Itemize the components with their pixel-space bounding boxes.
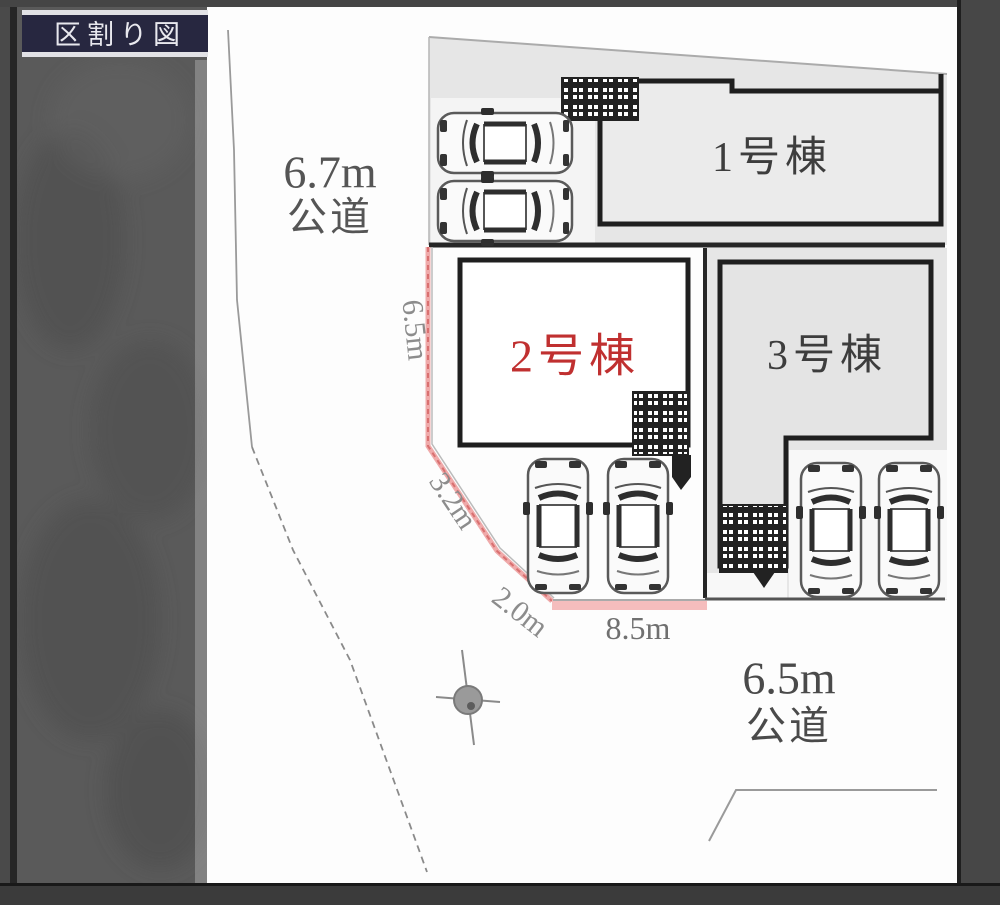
lot-3-south-sliver xyxy=(706,573,787,599)
west-road-label: 6.7m 公道 xyxy=(283,147,377,240)
top-strip xyxy=(0,0,1000,7)
title-rule-top xyxy=(22,10,208,15)
right-strip-line xyxy=(957,0,961,905)
building-2-label: 2号棟 xyxy=(510,331,640,382)
car-icon xyxy=(523,459,593,593)
dimension-west-side: 6.5m xyxy=(395,298,434,362)
car-icon xyxy=(874,463,944,597)
dimension-south-side: 8.5m xyxy=(606,610,671,646)
west-road-width: 6.7m xyxy=(283,147,377,198)
west-road-type: 公道 xyxy=(287,195,373,240)
car-icon xyxy=(438,176,572,246)
car-icon xyxy=(796,463,866,597)
site-plan-canvas: 区割り図 1号棟 2号棟 3号棟 xyxy=(0,0,1000,905)
building-3-label: 3号棟 xyxy=(767,333,887,379)
car-icon xyxy=(438,108,572,178)
right-strip xyxy=(957,0,1000,905)
entrance-grid-icon-building-1 xyxy=(562,78,638,120)
left-edge-shade xyxy=(0,0,10,905)
car-icon xyxy=(603,459,673,593)
page-title: 区割り図 xyxy=(54,20,186,50)
boundary-pink-band xyxy=(552,601,707,610)
bottom-strip-line xyxy=(0,883,1000,886)
left-plan-sliver xyxy=(195,60,207,883)
south-road-width: 6.5m xyxy=(742,653,836,704)
building-1-label: 1号棟 xyxy=(712,135,832,181)
bottom-strip xyxy=(0,886,1000,905)
site-plan-page: 区割り図 1号棟 2号棟 3号棟 xyxy=(0,0,1000,905)
south-road-label: 6.5m 公道 xyxy=(742,653,836,749)
title-box: 区割り図 xyxy=(22,10,208,57)
south-road-type: 公道 xyxy=(746,704,832,749)
building-1: 1号棟 xyxy=(600,74,941,224)
title-rule-bottom xyxy=(22,52,208,57)
left-edge-line xyxy=(10,0,17,905)
